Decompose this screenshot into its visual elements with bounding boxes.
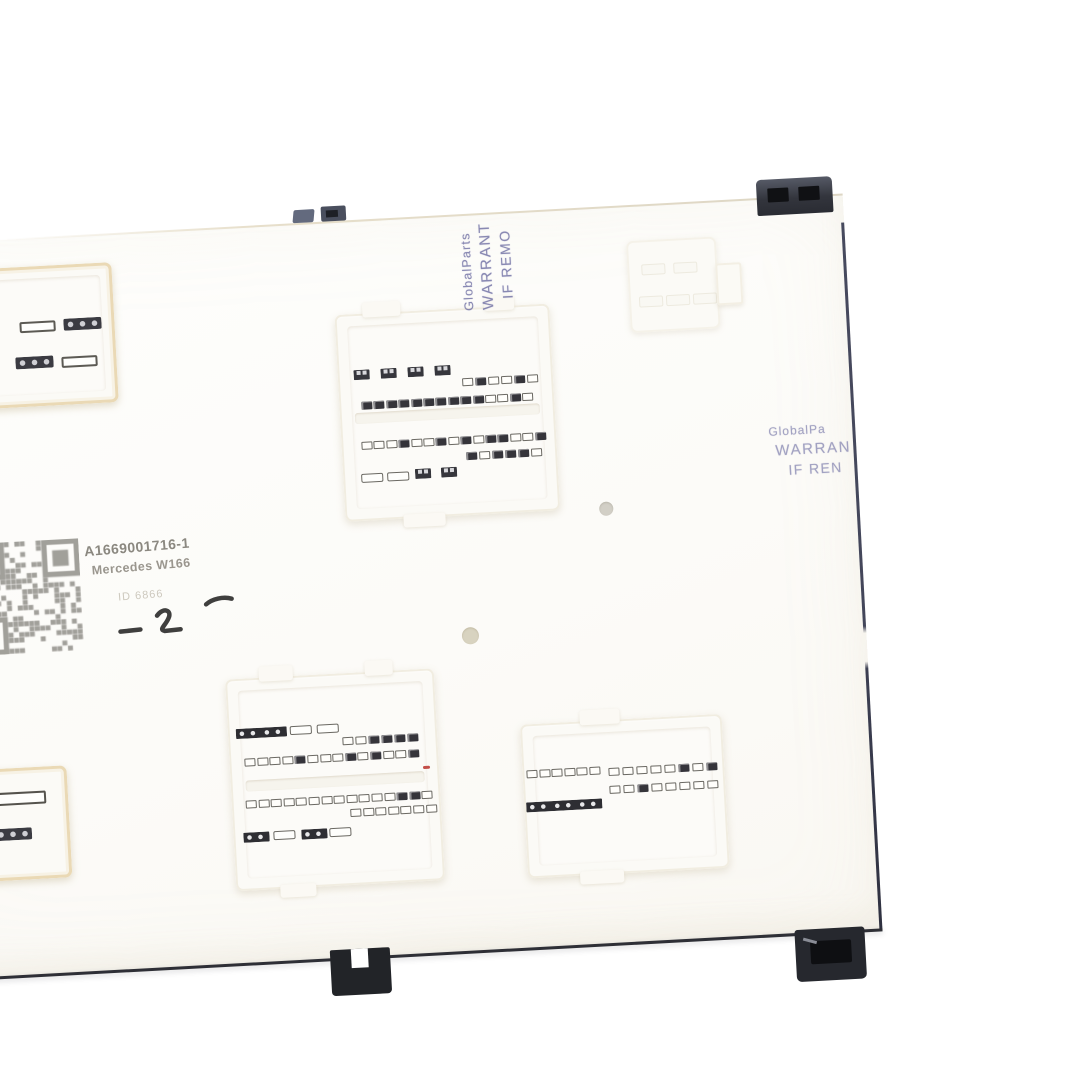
pin-slot (639, 295, 664, 307)
pin-slot (321, 796, 332, 805)
pin-slot (359, 794, 370, 803)
pin-slot (355, 736, 366, 745)
pin-slot (384, 793, 395, 802)
pin-slot (296, 797, 307, 806)
pin-slot (436, 437, 447, 446)
pin-slot (479, 451, 490, 460)
pin-slot (693, 781, 704, 790)
pin-slot (608, 767, 619, 776)
pin-slot (473, 435, 484, 444)
mounting-clip-top-right (756, 176, 834, 216)
pin-slot (475, 377, 486, 386)
connector-tab (362, 301, 401, 318)
mounting-clip-bottom-center (330, 947, 392, 996)
pin-slot (466, 452, 477, 461)
warranty-sticker-line: IF REMO (494, 194, 516, 299)
pin-slot (383, 751, 394, 760)
pin-slot (576, 767, 587, 776)
pin-slot (361, 401, 372, 410)
pin-slot (448, 397, 459, 406)
connector-tab (258, 665, 293, 682)
pin-slot (0, 827, 32, 841)
pin-slot (609, 785, 620, 794)
pin-slot (423, 398, 434, 407)
pin-slot (531, 448, 542, 457)
pin-slot (246, 800, 257, 809)
pin-slot (236, 728, 263, 739)
warranty-sticker-line: GlobalPa (768, 420, 862, 439)
pin-slot (386, 440, 397, 449)
pin-slot (368, 735, 379, 744)
connector-tab (280, 883, 317, 898)
pin-slot (422, 791, 433, 800)
pin-slot (273, 830, 295, 840)
alignment-hole (599, 501, 614, 516)
pin-slot (679, 782, 690, 791)
pin-slot (409, 791, 420, 800)
connector-plate (0, 275, 106, 399)
pin-slot (426, 804, 437, 813)
pin-slot (488, 376, 499, 385)
pin-slot (361, 441, 372, 450)
pin-slot (539, 769, 550, 778)
pin-slot (526, 801, 553, 812)
connector-socket-bottom-middle (225, 668, 445, 891)
pin-slot (510, 393, 521, 402)
pin-slot (501, 376, 512, 385)
pin-slot (257, 757, 268, 766)
pin-slot (0, 790, 46, 806)
pin-slot (408, 749, 419, 758)
pin-slot (370, 751, 381, 760)
pin-slot (522, 433, 533, 442)
pin-slot (407, 733, 418, 742)
pin-slot (706, 762, 717, 771)
pin-slot (692, 763, 703, 772)
pin-slot (320, 754, 331, 763)
pin-slot (400, 806, 411, 815)
pin-slot (258, 799, 269, 808)
pin-slot (641, 263, 666, 275)
module-face: A1669001716-1 Mercedes W166 ID 6866 -2- … (0, 194, 882, 980)
pin-slot (485, 395, 496, 404)
pin-slot (342, 737, 353, 746)
pin-slot (334, 795, 345, 804)
pin-slot (332, 753, 343, 762)
pin-slot (492, 450, 503, 459)
pin-slot (388, 806, 399, 815)
pin-slot (518, 449, 529, 458)
pin-slot (707, 780, 718, 789)
connector-tab (580, 869, 625, 884)
pin-slot (441, 467, 458, 478)
red-paint-dot (423, 766, 430, 769)
pin-slot (283, 798, 294, 807)
connector-socket-top-left (0, 262, 119, 411)
qr-code (0, 538, 84, 656)
pin-slot (551, 768, 562, 777)
pin-slot (398, 399, 409, 408)
product-photo: A1669001716-1 Mercedes W166 ID 6866 -2- … (0, 0, 1080, 1080)
pin-slot (664, 764, 675, 773)
pin-slot (394, 734, 405, 743)
pin-slot (411, 399, 422, 408)
pin-slot (282, 756, 293, 765)
pin-slot (576, 798, 603, 809)
pin-slot (564, 768, 575, 777)
pin-slot (497, 434, 508, 443)
pin-slot (693, 292, 718, 304)
warranty-sticker-line: WARRAN (775, 438, 863, 460)
connector-tab (364, 660, 393, 676)
pin-slot (380, 368, 397, 379)
pin-slot (665, 782, 676, 791)
pin-slot (497, 394, 508, 403)
pin-slot (15, 355, 54, 369)
pin-slot (522, 393, 533, 402)
pin-slot (505, 450, 516, 459)
connector-tab (579, 708, 620, 725)
pin-slot (460, 396, 471, 405)
pin-slot (363, 808, 374, 817)
pin-slot (244, 758, 255, 767)
connector-tab-small (715, 262, 743, 305)
pin-slot (526, 770, 537, 779)
pin-slot (473, 395, 484, 404)
pin-slot (637, 784, 648, 793)
pin-slot (374, 401, 385, 410)
pin-slot (397, 792, 408, 801)
mounting-clip-top-left (292, 201, 347, 230)
pin-slot (434, 365, 451, 376)
pin-slot (395, 750, 406, 759)
pin-slot (622, 767, 633, 776)
connector-plate (532, 726, 717, 865)
pin-slot (423, 438, 434, 447)
pin-slot (19, 320, 56, 333)
pin-slot (387, 471, 409, 481)
pin-slot (269, 757, 280, 766)
pin-slot (317, 724, 339, 734)
pin-slot (61, 355, 98, 368)
pin-slot (666, 294, 691, 306)
pin-slot (329, 827, 351, 837)
pin-slot (271, 799, 282, 808)
pin-slot (623, 785, 634, 794)
pin-slot (650, 765, 661, 774)
pin-slot (589, 766, 600, 775)
pin-slot (350, 808, 361, 817)
pin-slot (353, 369, 370, 380)
pin-slot (371, 793, 382, 802)
pin-slot (510, 433, 521, 442)
pin-slot (381, 735, 392, 744)
pin-slot (308, 797, 319, 806)
pin-slot (514, 375, 525, 384)
pin-slot (407, 366, 424, 377)
connector-socket-top-middle (334, 304, 560, 522)
pin-slot (462, 378, 473, 387)
pin-slot (448, 437, 459, 446)
pin-slot (651, 783, 662, 792)
pin-slot (535, 432, 546, 441)
alignment-hole (462, 627, 480, 645)
pin-slot (361, 473, 383, 483)
connector-socket-bottom-left (0, 765, 72, 883)
pin-slot (295, 755, 306, 764)
mounting-clip-bottom-right (794, 926, 867, 982)
connector-socket-top-right (626, 236, 721, 333)
pin-slot (290, 725, 312, 735)
pin-slot (435, 397, 446, 406)
pin-slot (527, 374, 538, 383)
pin-slot (357, 752, 368, 761)
pin-slot (63, 317, 102, 331)
warranty-sticker-line: IF REN (788, 458, 864, 478)
pin-slot (301, 828, 328, 839)
pin-slot (413, 805, 424, 814)
pin-slot (398, 439, 409, 448)
pin-slot (307, 755, 318, 764)
pin-slot (485, 435, 496, 444)
connector-socket-bottom-right (520, 714, 730, 879)
warranty-sticker-right: GlobalPa WARRAN IF REN (766, 420, 865, 509)
pin-slot (345, 753, 356, 762)
pin-slot (411, 439, 422, 448)
pin-slot (386, 400, 397, 409)
pin-slot (460, 436, 471, 445)
pin-slot (375, 807, 386, 816)
connector-tab (403, 512, 446, 527)
pin-slot (415, 468, 432, 479)
pin-slot (551, 800, 578, 811)
pin-slot (374, 441, 385, 450)
pin-slot (636, 766, 647, 775)
pin-slot (678, 764, 689, 773)
sam-module: A1669001716-1 Mercedes W166 ID 6866 -2- … (0, 194, 882, 980)
pin-slot (261, 726, 288, 737)
pin-slot (346, 795, 357, 804)
pin-slot (243, 831, 270, 842)
pin-slot (673, 261, 698, 273)
